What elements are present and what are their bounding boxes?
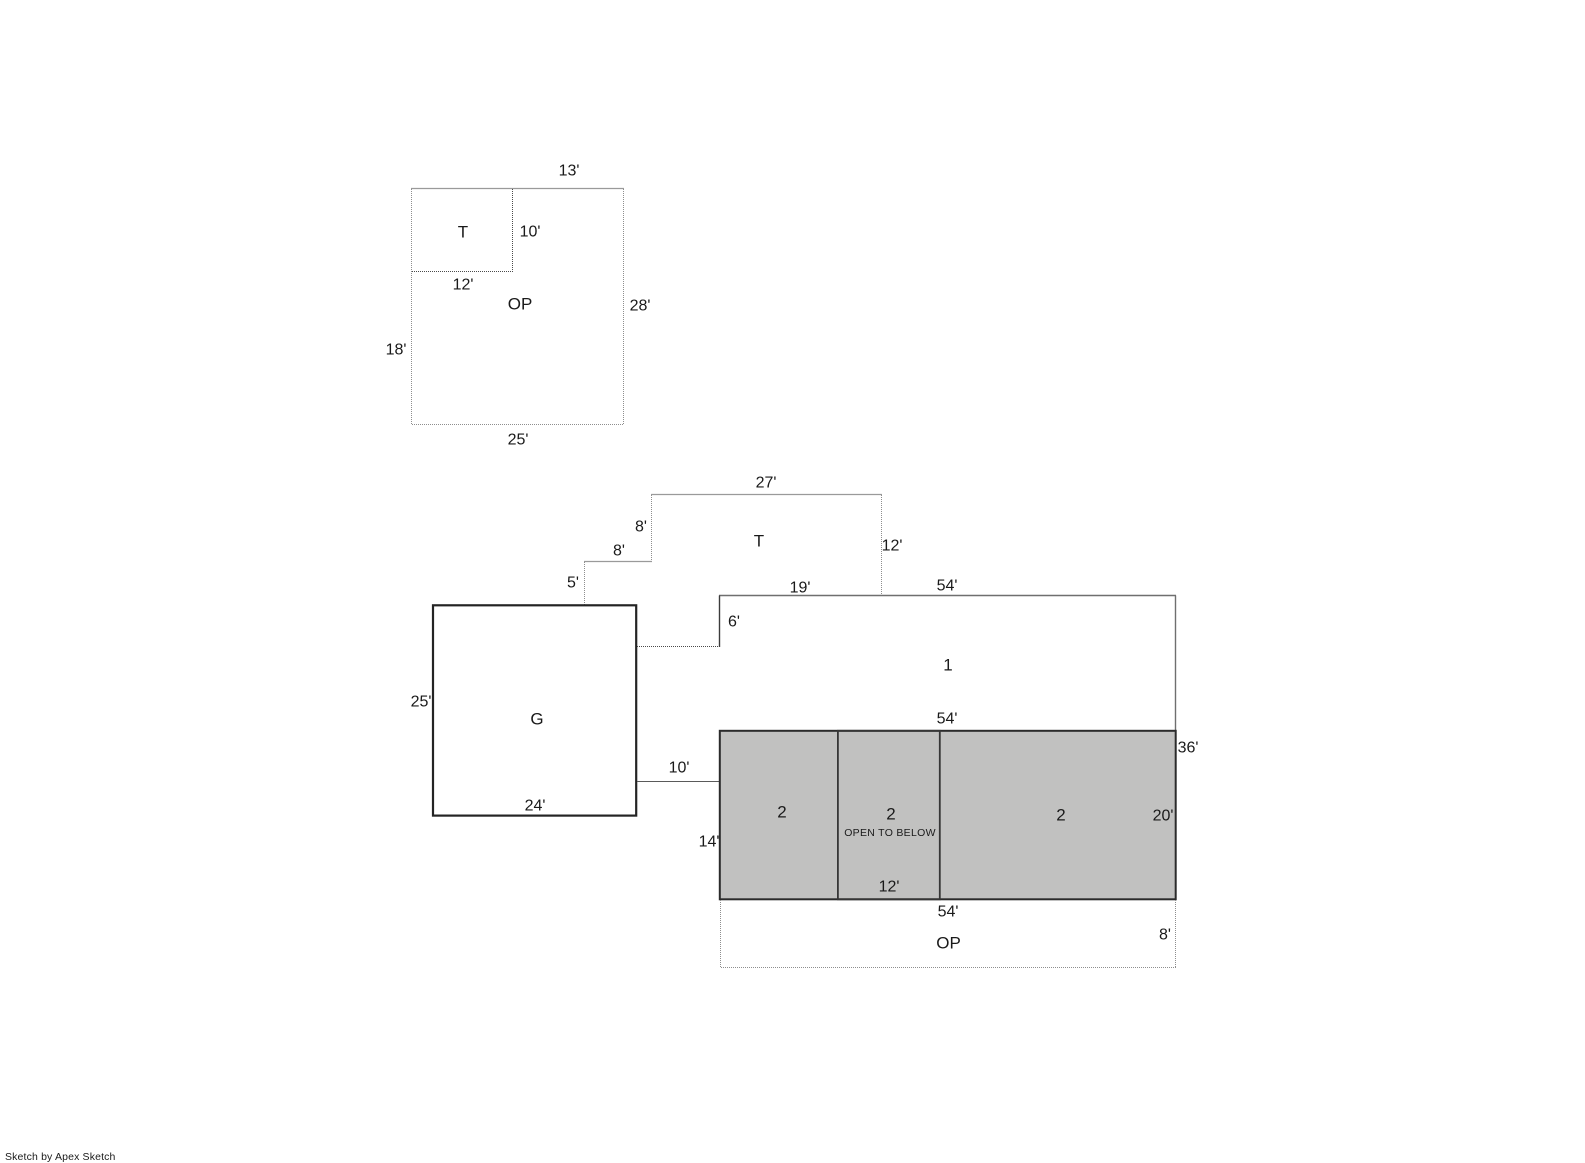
svg-text:27': 27' (756, 475, 777, 492)
svg-text:G: G (530, 710, 543, 729)
svg-text:54': 54' (937, 578, 958, 595)
svg-text:OP: OP (508, 295, 533, 314)
svg-text:1: 1 (943, 656, 952, 675)
svg-text:10': 10' (520, 224, 541, 241)
svg-text:8': 8' (613, 543, 625, 560)
svg-text:12': 12' (879, 879, 900, 896)
svg-text:13': 13' (559, 163, 580, 180)
svg-text:T: T (458, 223, 468, 242)
svg-text:8': 8' (1159, 927, 1171, 944)
svg-text:5': 5' (567, 575, 579, 592)
svg-text:OPEN TO BELOW: OPEN TO BELOW (844, 827, 936, 839)
svg-text:54': 54' (937, 711, 958, 728)
svg-text:14': 14' (699, 834, 720, 851)
svg-text:2: 2 (777, 803, 786, 822)
svg-text:OP: OP (936, 934, 961, 953)
svg-text:25': 25' (411, 694, 432, 711)
svg-text:20': 20' (1153, 808, 1174, 825)
svg-text:2: 2 (1056, 806, 1065, 825)
svg-text:6': 6' (728, 614, 740, 631)
svg-text:12': 12' (882, 538, 903, 555)
svg-text:Sketch by Apex Sketch: Sketch by Apex Sketch (5, 1151, 116, 1163)
svg-text:10': 10' (669, 760, 690, 777)
svg-text:18': 18' (386, 342, 407, 359)
svg-text:24': 24' (525, 798, 546, 815)
svg-text:28': 28' (630, 298, 651, 315)
svg-text:36': 36' (1178, 740, 1199, 757)
svg-text:12': 12' (453, 277, 474, 294)
svg-text:8': 8' (635, 519, 647, 536)
svg-text:2: 2 (886, 805, 895, 824)
svg-text:25': 25' (508, 432, 529, 449)
svg-text:54': 54' (938, 904, 959, 921)
svg-text:T: T (754, 532, 764, 551)
svg-text:19': 19' (790, 580, 811, 597)
